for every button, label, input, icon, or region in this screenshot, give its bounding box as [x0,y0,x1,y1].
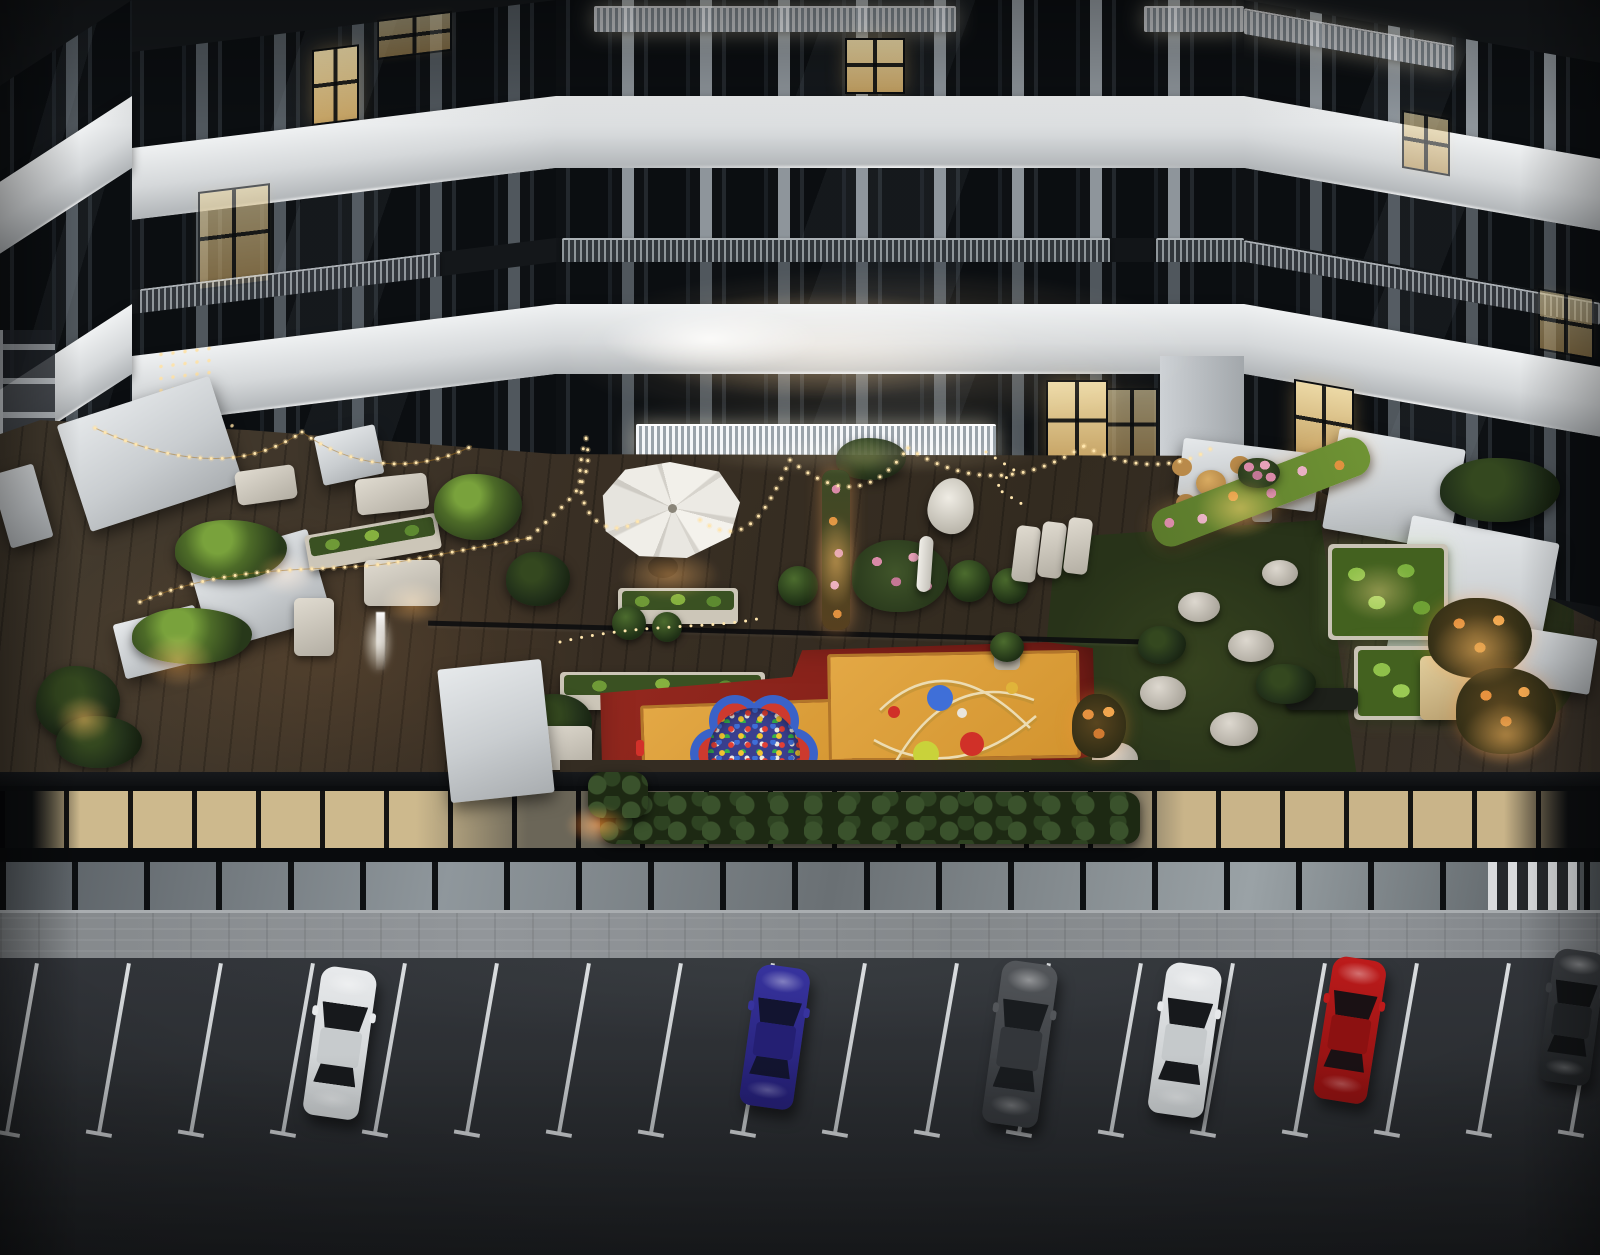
pouf-seat [1140,676,1186,710]
car-body-shine [1170,966,1218,995]
car-body-shine [1320,1072,1363,1095]
outdoor-sofa [294,598,334,656]
parking-line [925,963,959,1133]
facade-slab-band [556,304,1244,374]
car-body-shine [746,1079,789,1102]
small-tree [990,632,1024,662]
car-white [302,965,378,1121]
planting-bed [434,474,522,540]
lit-window [1404,112,1448,174]
parking-line [465,963,499,1133]
car-body-shine [1557,952,1600,978]
lit-window [847,40,903,92]
flower-column [822,470,850,630]
parking-line [1477,963,1511,1133]
parking-line [557,963,591,1133]
car-body-shine [760,968,806,995]
parking-line [189,963,223,1133]
storefront-glazing [0,862,1600,912]
autumn-plant [1456,668,1556,754]
car-white [1147,961,1224,1119]
lit-window [200,185,268,288]
facade-slab-band [556,96,1244,168]
parking-line [373,963,407,1133]
parking-line [1385,963,1419,1133]
planting-bed [132,608,252,664]
playground-hedge [600,792,1140,844]
outdoor-sofa [354,472,429,515]
balcony-railing [1156,238,1244,264]
car-body-shine [1544,1057,1585,1078]
rattan-chair [1172,458,1192,476]
playground-hedge [588,772,648,818]
balcony-railing [562,238,1110,264]
car-body-shine [1155,1085,1200,1109]
car-roof [1327,1014,1372,1054]
shrub [1138,626,1186,664]
car-roof [1161,1024,1207,1066]
car-body-shine [324,970,371,999]
parking-line [5,963,39,1133]
balcony-railing [1144,6,1244,32]
pouf-seat [1228,630,1274,662]
car-roof [996,1026,1043,1071]
pouf-seat [1210,712,1258,746]
car-blue [738,963,811,1111]
facade-window-row [556,168,1244,238]
car-roof [752,1022,796,1061]
terrace-floor-lamp [376,612,385,670]
autumn-plant [1428,598,1532,678]
pouf-seat [1262,560,1298,586]
play-figure [636,740,644,756]
car-mirror [747,1000,754,1011]
car-mirror [1545,982,1552,993]
shrub [1440,458,1560,522]
flower-bush [852,540,948,612]
lit-window [1540,290,1592,357]
car-mirror [1378,1001,1385,1012]
topiary-tree [612,606,646,640]
topiary-tree [778,566,818,606]
umbrella-pole-cap [668,504,677,513]
car-dark-gray [981,959,1059,1129]
facade-window-row [556,262,1244,304]
lit-window [314,46,357,123]
lit-window [1048,382,1106,462]
awning [437,659,554,803]
flower-bush [1238,458,1280,488]
pouf-seat [1178,592,1220,622]
podium-dark-band [0,848,1600,862]
car-body-shine [1005,965,1053,996]
car-body-shine [310,1088,355,1112]
umbrella-table [648,556,678,578]
car-mirror [1323,992,1330,1003]
autumn-plant [1072,694,1126,758]
car-mirror [369,1012,376,1023]
parking-lot [0,958,1600,1255]
car-dark-gray [1537,947,1600,1087]
planting-bed [175,520,287,580]
shrub [506,552,570,606]
car-mirror [803,1008,810,1019]
shrub [1256,664,1316,704]
courtyard-rendering [0,0,1600,1255]
car-mirror [312,1004,319,1015]
garage-door-slats [1488,862,1580,912]
lit-window [1108,390,1156,462]
parking-line [649,963,683,1133]
building-facade-center [556,0,1244,472]
car-mirror [1157,1001,1164,1012]
car-mirror [992,1002,999,1013]
parking-line [833,963,867,1133]
car-mirror [1050,1010,1057,1021]
playground-orange-mat [827,650,1081,762]
car-roof [1550,1002,1593,1039]
outdoor-sofa [364,560,440,606]
parking-line [1109,963,1143,1133]
topiary-tree [948,560,990,602]
parking-line [97,963,131,1133]
car-roof [316,1027,362,1068]
car-body-shine [1336,960,1382,988]
shrub [56,716,142,768]
car-body-shine [989,1093,1034,1118]
balcony-railing [594,6,956,32]
